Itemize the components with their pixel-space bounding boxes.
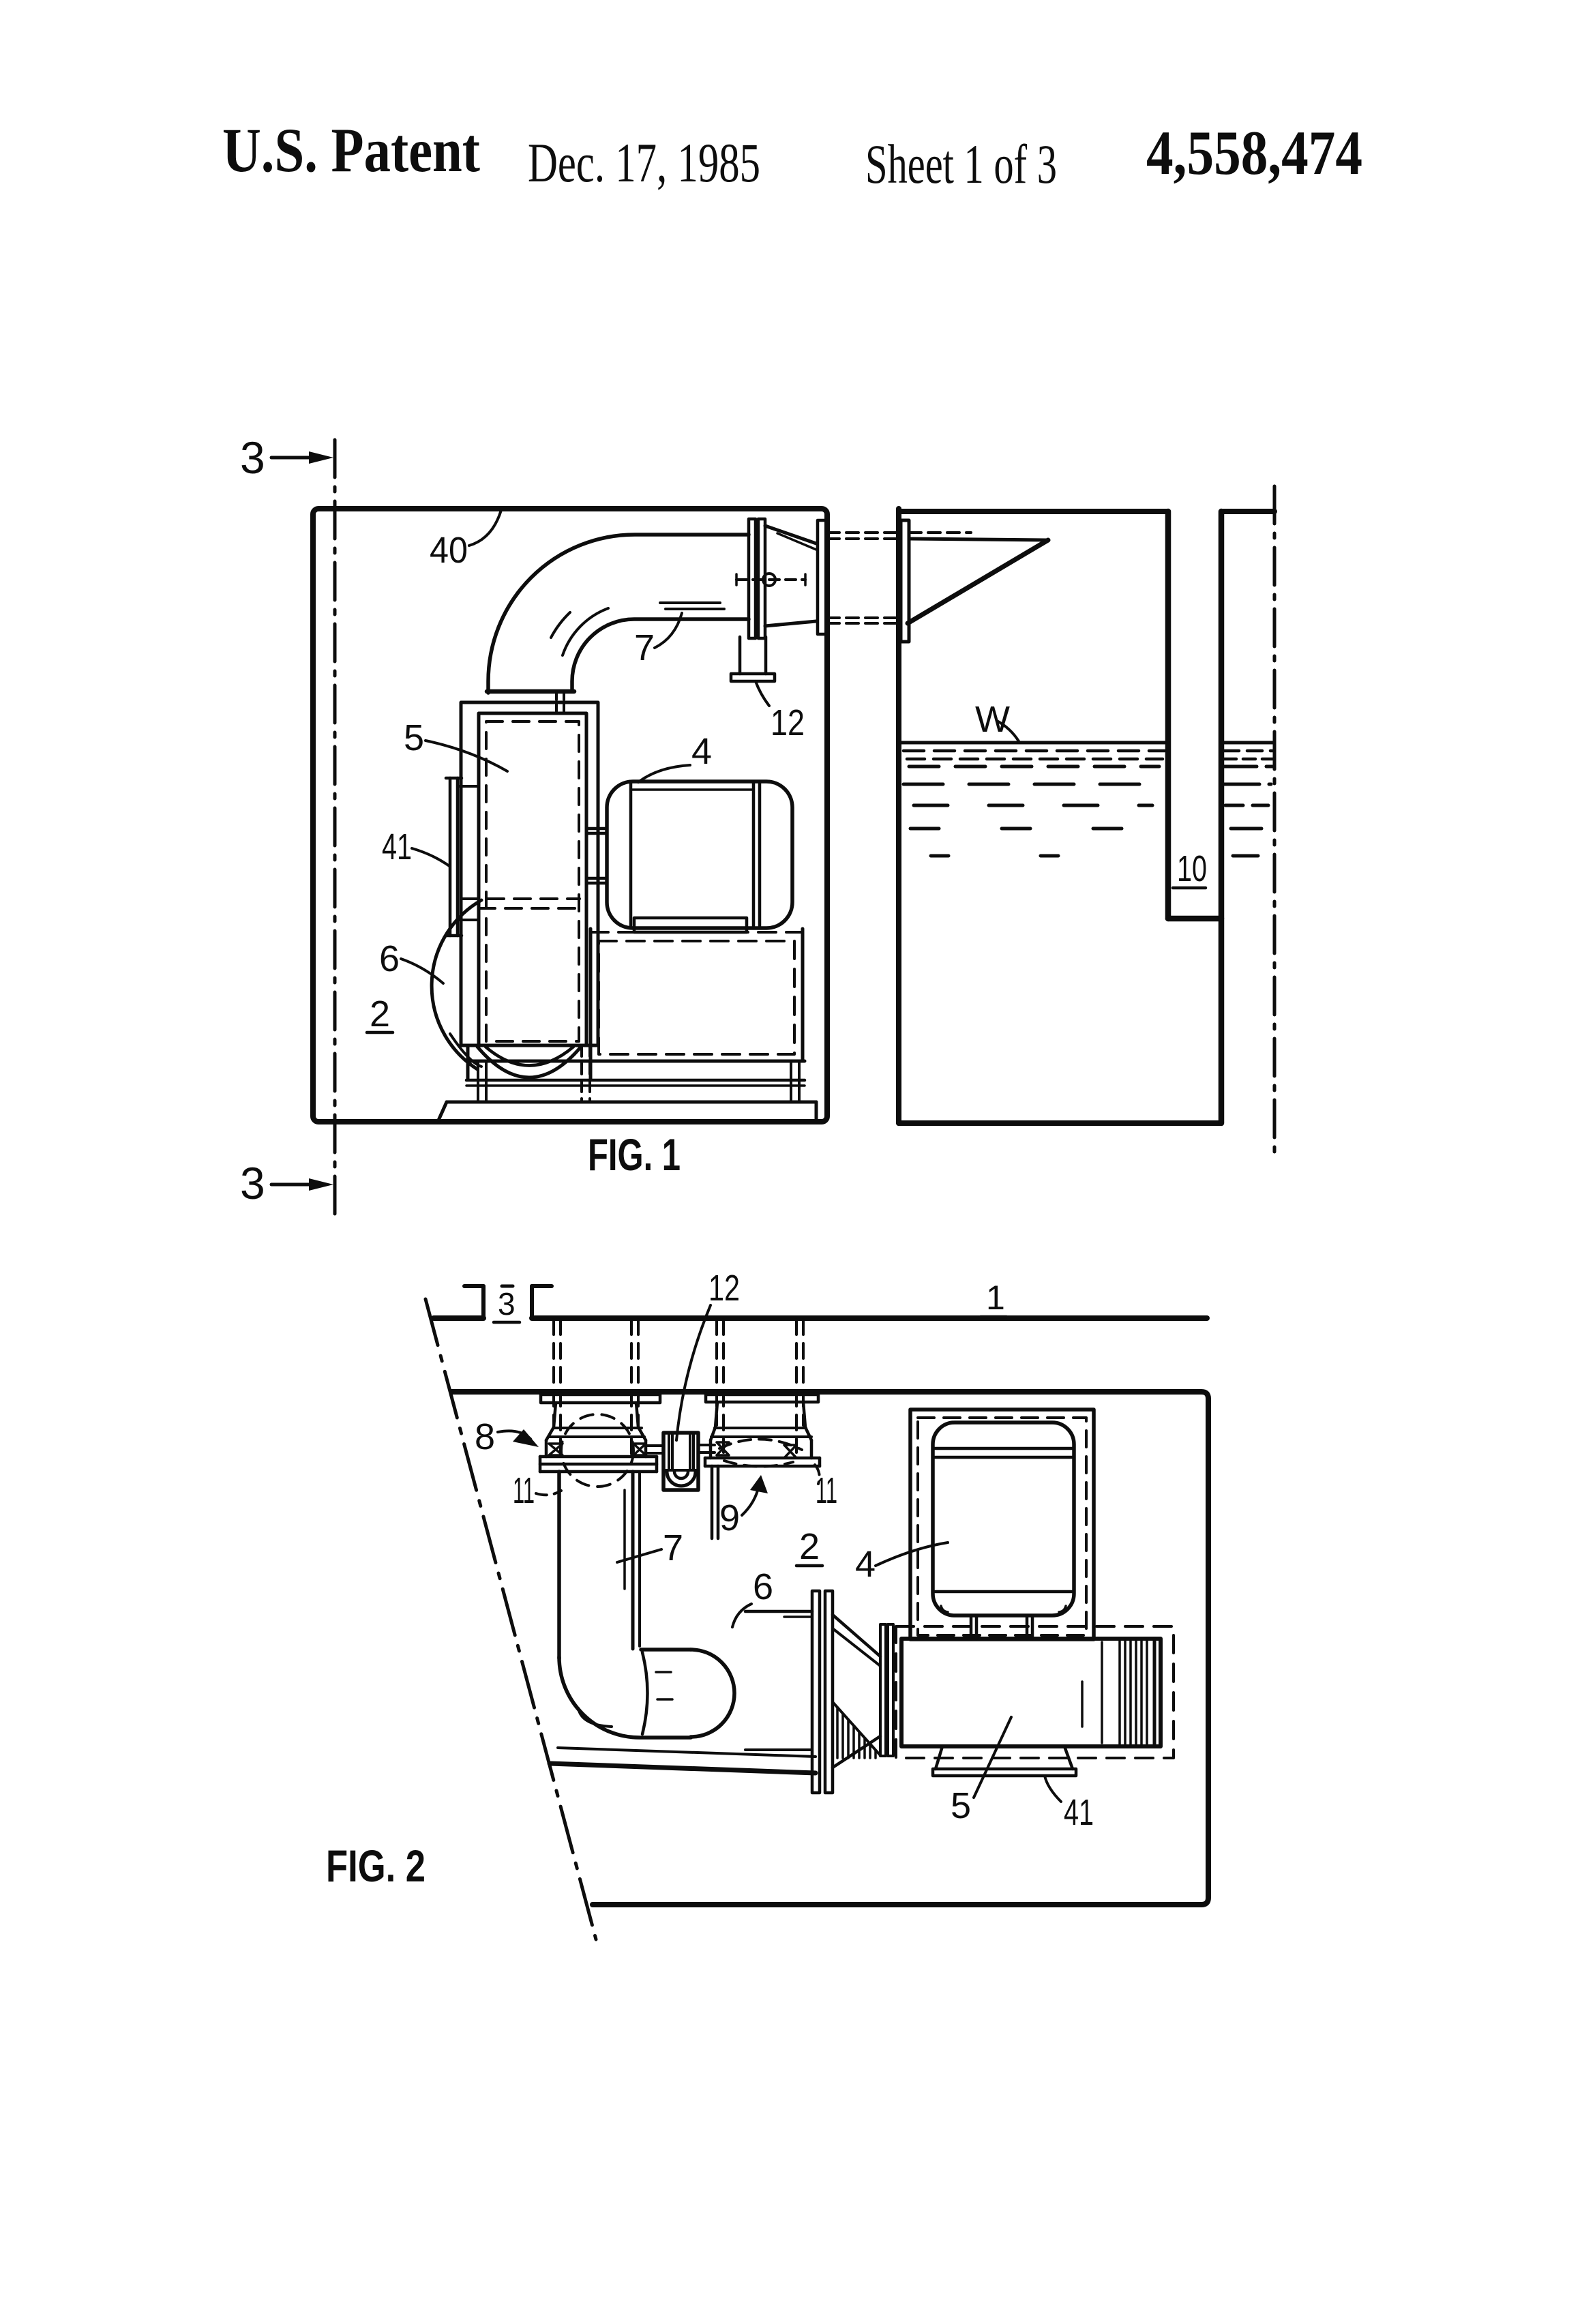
svg-text:4,558,474: 4,558,474	[1146, 118, 1362, 188]
svg-text:12: 12	[771, 702, 805, 743]
svg-text:2: 2	[799, 1526, 820, 1567]
svg-text:8: 8	[475, 1416, 495, 1457]
svg-text:6: 6	[379, 938, 400, 979]
svg-text:12: 12	[708, 1268, 740, 1309]
svg-text:Dec. 17, 1985: Dec. 17, 1985	[528, 132, 760, 194]
svg-text:3: 3	[498, 1286, 516, 1322]
svg-text:10: 10	[1177, 848, 1207, 889]
svg-text:41: 41	[382, 826, 412, 867]
svg-text:7: 7	[663, 1528, 683, 1568]
svg-text:FIG. 1: FIG. 1	[588, 1129, 681, 1180]
svg-text:11: 11	[513, 1470, 535, 1511]
svg-text:1: 1	[986, 1279, 1005, 1317]
svg-text:11: 11	[816, 1470, 837, 1511]
svg-text:3: 3	[240, 1158, 265, 1208]
svg-text:5: 5	[404, 717, 424, 758]
svg-text:9: 9	[719, 1498, 740, 1538]
svg-text:6: 6	[753, 1566, 773, 1607]
svg-text:41: 41	[1064, 1792, 1094, 1833]
svg-text:3: 3	[240, 432, 265, 483]
svg-text:W: W	[975, 699, 1010, 740]
svg-text:7: 7	[634, 627, 655, 668]
svg-text:4: 4	[855, 1544, 876, 1585]
svg-text:U.S. Patent: U.S. Patent	[222, 115, 480, 185]
svg-text:40: 40	[430, 530, 468, 571]
svg-text:5: 5	[951, 1785, 971, 1826]
svg-text:2: 2	[370, 994, 390, 1034]
svg-text:4: 4	[691, 731, 712, 772]
svg-text:Sheet 1 of 3: Sheet 1 of 3	[865, 133, 1057, 195]
svg-text:FIG. 2: FIG. 2	[326, 1841, 426, 1891]
